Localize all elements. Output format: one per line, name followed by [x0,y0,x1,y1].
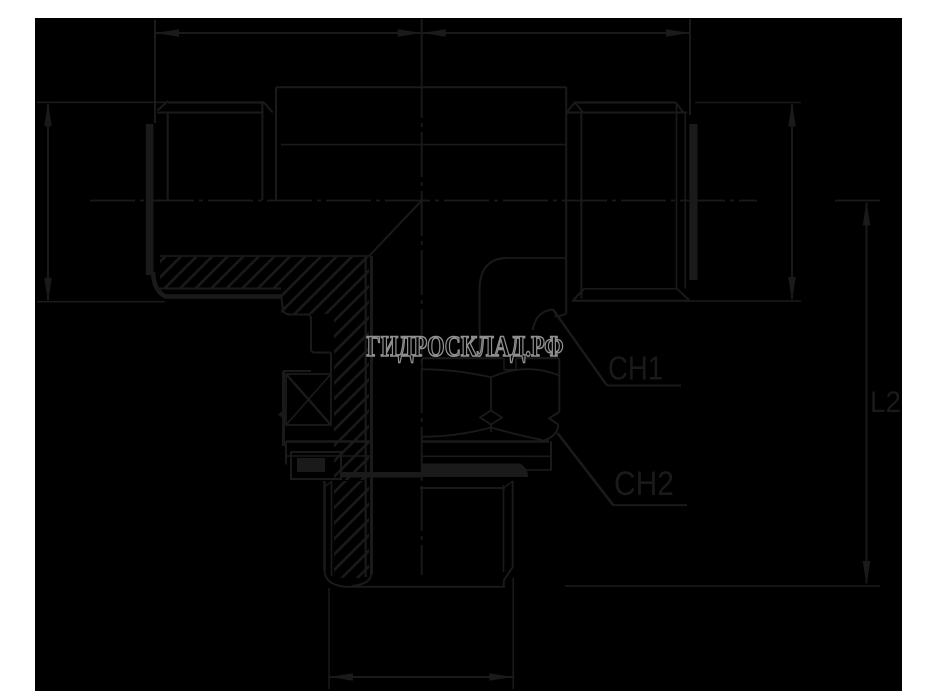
svg-text:L2: L2 [870,386,901,419]
svg-text:CH1: CH1 [608,350,663,387]
svg-text:ГИДРОСКЛАД.РФ: ГИДРОСКЛАД.РФ [367,330,564,363]
svg-text:CH2: CH2 [614,465,674,503]
